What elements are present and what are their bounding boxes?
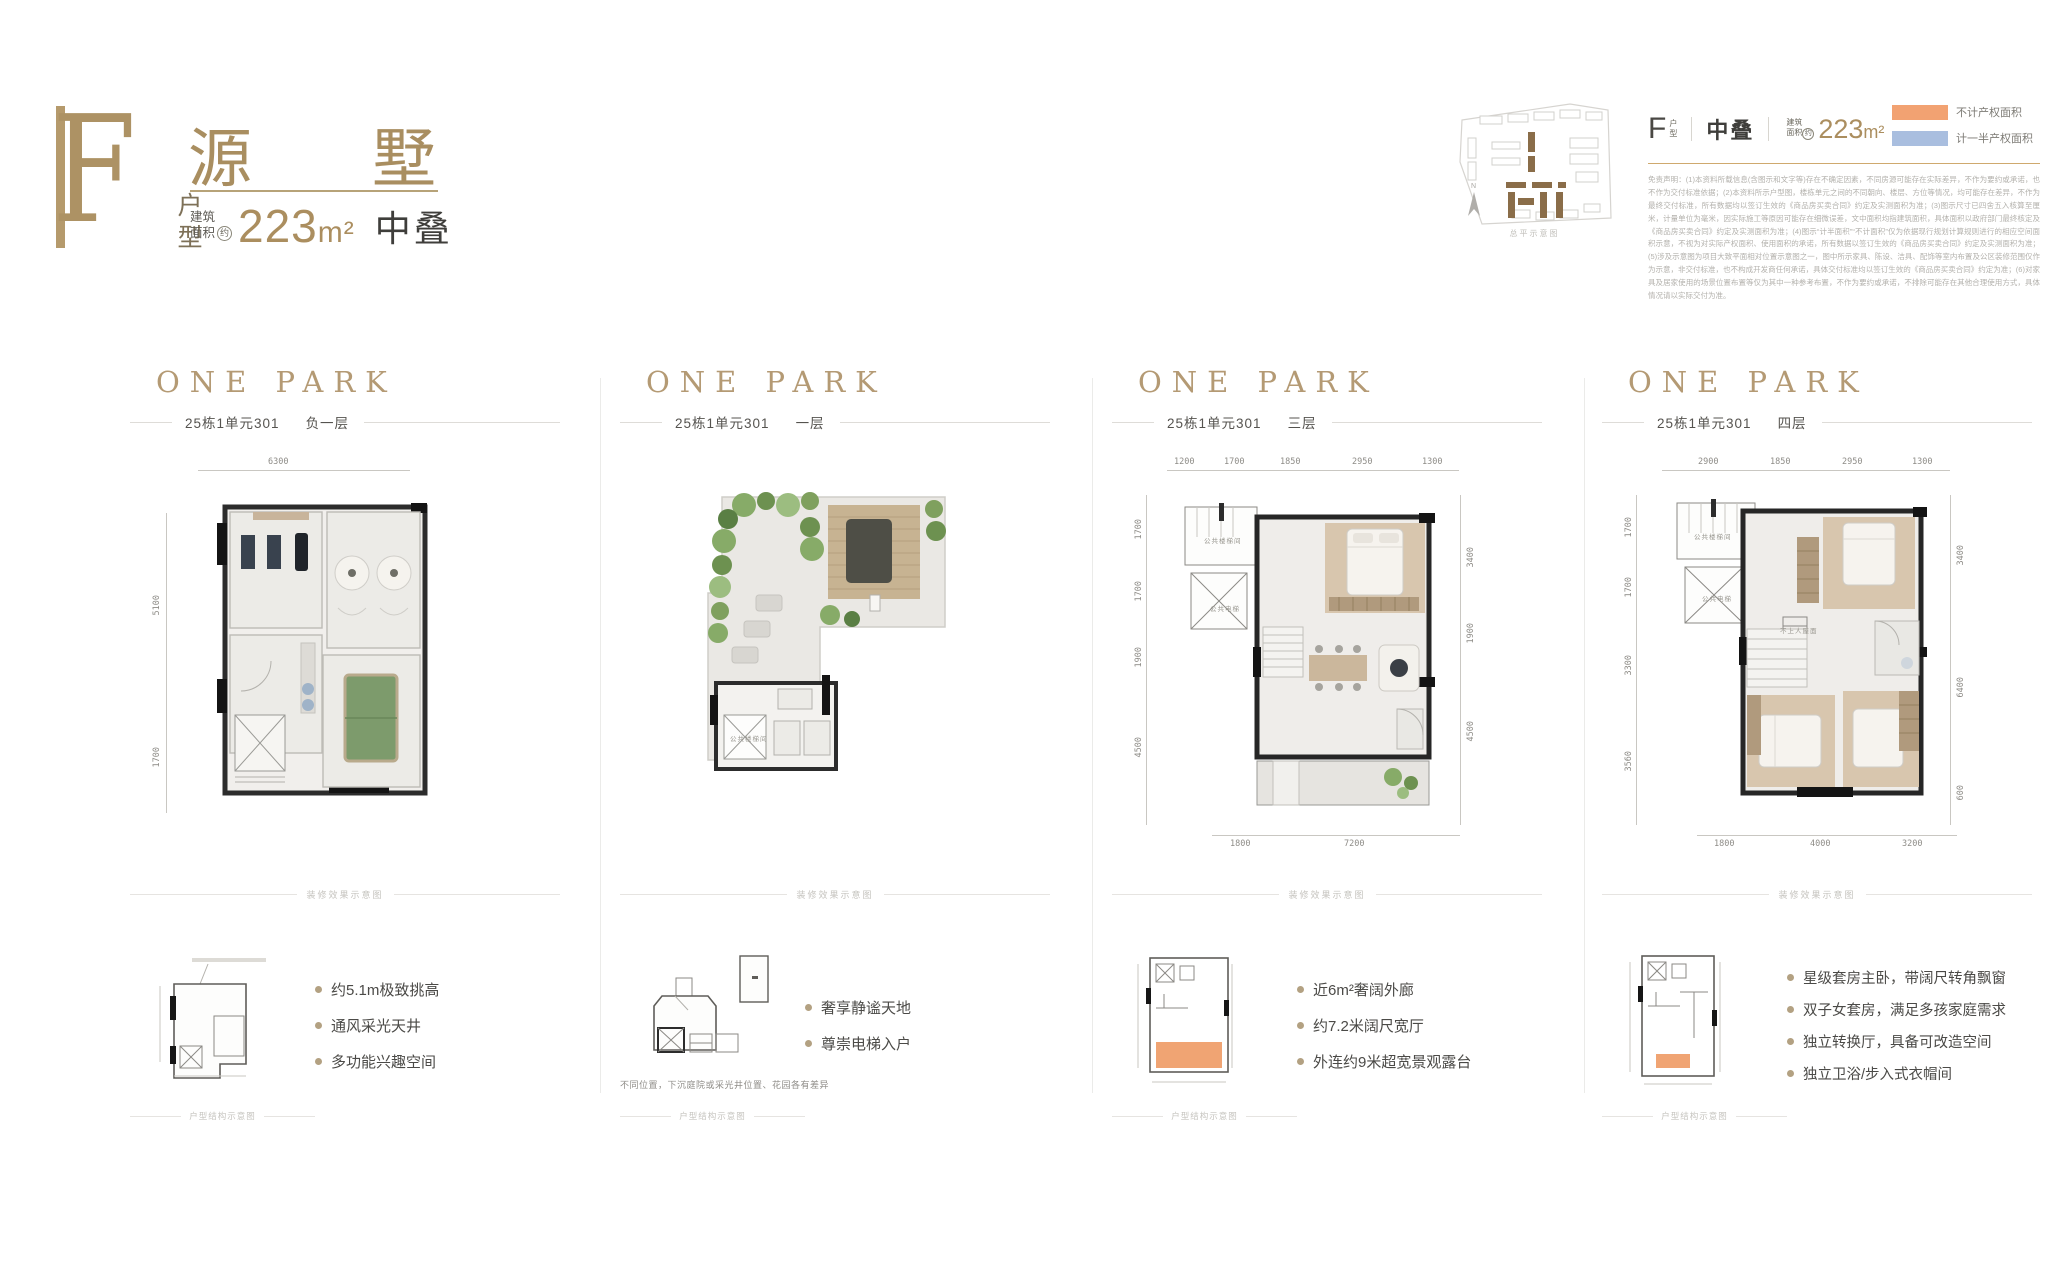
caption-floor: 负一层 bbox=[306, 412, 350, 432]
stack-type-label: 中叠 bbox=[375, 200, 453, 252]
structure-diagram-drawing bbox=[1112, 950, 1297, 1095]
gold-rule bbox=[190, 190, 438, 192]
one-park-logo: ONE PARK bbox=[130, 365, 560, 399]
siteplan-map-icon: N bbox=[1452, 98, 1617, 228]
one-park-logo: ONE PARK bbox=[1112, 365, 1542, 399]
feature-item: 外连约9米超宽景观露台 bbox=[1297, 1051, 1538, 1072]
room-label: 公共楼梯间 bbox=[730, 733, 768, 743]
panel-fourth-floor: ONE PARK 25栋1单元301 四层 2900 1850 2950 130… bbox=[1602, 365, 2032, 1130]
siteplan-caption: 总平示意图 bbox=[1452, 228, 1617, 239]
structure-caption: 户型结构示意图 bbox=[620, 1110, 805, 1122]
bullet-dot-icon bbox=[1787, 974, 1794, 981]
feature-item: 独立转换厅，具备可改造空间 bbox=[1787, 1031, 2028, 1052]
info-type-label: 户 型 bbox=[1669, 119, 1677, 138]
feature-item: 约5.1m极致挑高 bbox=[315, 979, 556, 1000]
structure-caption: 户型结构示意图 bbox=[130, 1110, 315, 1122]
area-value: 223m² bbox=[238, 199, 355, 253]
dim-top: 6300 bbox=[268, 457, 288, 467]
effect-caption: 装修效果示意图 bbox=[1112, 888, 1542, 901]
area-label-2: 面积 bbox=[190, 226, 215, 242]
caption-unit: 25栋1单元301 bbox=[1657, 412, 1752, 432]
brochure-page: F 户型 源墅 建筑 面积约 223m² 中叠 bbox=[0, 0, 2048, 1280]
bullet-dot-icon bbox=[315, 1058, 322, 1065]
caption-unit: 25栋1单元301 bbox=[185, 412, 280, 432]
feature-item: 双子女套房，满足多孩家庭需求 bbox=[1787, 999, 2028, 1020]
dim-line bbox=[166, 513, 167, 813]
panel-bottom: 星级套房主卧，带阔尺转角飘窗 双子女套房，满足多孩家庭需求 独立转换厅，具备可改… bbox=[1602, 950, 2032, 1100]
structure-diagram bbox=[1112, 950, 1297, 1100]
one-park-logo: ONE PARK bbox=[1602, 365, 2032, 399]
feature-item: 奢享静谧天地 bbox=[805, 997, 1046, 1018]
divider bbox=[1691, 117, 1692, 141]
floorplan-fourth: 2900 1850 2950 1300 1700 1700 3300 3560 … bbox=[1602, 455, 2032, 885]
bullet-dot-icon bbox=[315, 986, 322, 993]
bullet-dot-icon bbox=[1297, 1022, 1304, 1029]
effect-caption: 装修效果示意图 bbox=[1602, 888, 2032, 901]
panel-basement-floor: ONE PARK 25栋1单元301 负一层 6300 5100 1700 bbox=[130, 365, 560, 1130]
bullet-dot-icon bbox=[1787, 1070, 1794, 1077]
bullet-dot-icon bbox=[1787, 1038, 1794, 1045]
legend-item-half: 计一半产权面积 bbox=[1892, 130, 2033, 146]
panel-bottom: 近6m²奢阔外廊 约7.2米阔尺宽厅 外连约9米超宽景观露台 bbox=[1112, 950, 1542, 1100]
plan-caption-row: 25栋1单元301 一层 bbox=[620, 412, 1050, 432]
gold-rule bbox=[1648, 163, 2040, 164]
bullet-dot-icon bbox=[315, 1022, 322, 1029]
divider bbox=[1768, 117, 1769, 141]
caption-floor: 三层 bbox=[1288, 412, 1317, 432]
legend-swatch-orange bbox=[1892, 105, 1948, 120]
room-label: 公共电梯 bbox=[1210, 603, 1240, 613]
plan-caption-row: 25栋1单元301 负一层 bbox=[130, 412, 560, 432]
bullet-dot-icon bbox=[1297, 1058, 1304, 1065]
area-unit: m² bbox=[318, 216, 355, 249]
area-prefix: 建筑 面积约 bbox=[190, 210, 232, 241]
info-type-letter: F bbox=[1648, 112, 1666, 146]
room-label: 公共楼梯间 bbox=[1204, 535, 1242, 545]
panel-bottom: 约5.1m极致挑高 通风采光天井 多功能兴趣空间 bbox=[130, 950, 560, 1100]
feature-item: 星级套房主卧，带阔尺转角飘窗 bbox=[1787, 967, 2028, 988]
panel-third-floor: ONE PARK 25栋1单元301 三层 1200 1700 1850 295… bbox=[1112, 365, 1542, 1130]
header-area-row: 建筑 面积约 223m² 中叠 bbox=[190, 199, 453, 253]
dim-left: 1700 bbox=[152, 747, 162, 767]
legend-swatch-blue bbox=[1892, 131, 1948, 146]
disclaimer-text: 免责声明：(1)本资料所载信息(含图示和文字等)存在不确定因素，不同房源可能存在… bbox=[1648, 174, 2040, 303]
feature-item: 约7.2米阔尺宽厅 bbox=[1297, 1015, 1538, 1036]
room-label: 公共电梯 bbox=[1702, 593, 1732, 603]
garden-note: 不同位置，下沉庭院或采光井位置、花园各有差异 bbox=[620, 1078, 930, 1091]
feature-item: 独立卫浴/步入式衣帽间 bbox=[1787, 1063, 2028, 1084]
bullet-dot-icon bbox=[1297, 986, 1304, 993]
area-label-1: 建筑 bbox=[190, 210, 232, 226]
structure-diagram bbox=[1602, 950, 1787, 1100]
structure-diagram-drawing bbox=[130, 950, 315, 1095]
unit-type-letter: F bbox=[52, 96, 136, 244]
approx-circle: 约 bbox=[217, 226, 232, 241]
structure-caption: 户型结构示意图 bbox=[1112, 1110, 1297, 1122]
info-area-label: 建筑 面积约 bbox=[1786, 118, 1814, 140]
caption-line bbox=[364, 422, 560, 423]
feature-item: 通风采光天井 bbox=[315, 1015, 556, 1036]
feature-item: 近6m²奢阔外廊 bbox=[1297, 979, 1538, 1000]
dim-line bbox=[198, 470, 410, 471]
effect-caption: 装修效果示意图 bbox=[620, 888, 1050, 901]
legend-item-excluded: 不计产权面积 bbox=[1892, 104, 2033, 120]
floorplan-garden-drawing bbox=[660, 475, 980, 825]
caption-floor: 一层 bbox=[796, 412, 825, 432]
column-divider bbox=[1584, 378, 1585, 1093]
product-name-char1: 源 bbox=[188, 123, 254, 195]
floorplan-fourth-drawing bbox=[1647, 477, 1947, 832]
plan-caption-row: 25栋1单元301 三层 bbox=[1112, 412, 1542, 432]
area-legend: 不计产权面积 计一半产权面积 bbox=[1892, 104, 2033, 146]
floorplan-basement-drawing bbox=[175, 483, 475, 823]
column-divider bbox=[600, 378, 601, 1093]
floorplan-basement: 6300 5100 1700 bbox=[130, 455, 560, 885]
structure-caption: 户型结构示意图 bbox=[1602, 1110, 1787, 1122]
legend-label: 不计产权面积 bbox=[1956, 104, 2022, 120]
siteplan-diagram: N bbox=[1452, 98, 1617, 233]
dim-left: 5100 bbox=[152, 595, 162, 615]
bullet-dot-icon bbox=[805, 1004, 812, 1011]
feature-item: 尊崇电梯入户 bbox=[805, 1033, 1046, 1054]
product-name: 源墅 bbox=[188, 108, 438, 200]
caption-unit: 25栋1单元301 bbox=[1167, 412, 1262, 432]
floorplan-garden: 公共楼梯间 bbox=[620, 455, 1050, 885]
feature-list: 约5.1m极致挑高 通风采光天井 多功能兴趣空间 bbox=[315, 950, 560, 1100]
caption-floor: 四层 bbox=[1778, 412, 1807, 432]
info-area-value: 223m² bbox=[1818, 114, 1884, 145]
structure-diagram-drawing bbox=[1602, 950, 1787, 1095]
approx-circle: 约 bbox=[1802, 128, 1814, 140]
bullet-dot-icon bbox=[1787, 1006, 1794, 1013]
structure-diagram-drawing bbox=[620, 950, 805, 1075]
panel-first-floor: ONE PARK 25栋1单元301 一层 bbox=[620, 365, 1050, 1130]
caption-unit: 25栋1单元301 bbox=[675, 412, 770, 432]
caption-line bbox=[130, 422, 172, 423]
feature-list: 星级套房主卧，带阔尺转角飘窗 双子女套房，满足多孩家庭需求 独立转换厅，具备可改… bbox=[1787, 950, 2032, 1100]
one-park-logo: ONE PARK bbox=[620, 365, 1050, 399]
feature-item: 多功能兴趣空间 bbox=[315, 1051, 556, 1072]
product-name-char2: 墅 bbox=[372, 123, 438, 195]
svg-text:N: N bbox=[1471, 183, 1476, 190]
legend-label: 计一半产权面积 bbox=[1956, 130, 2033, 146]
room-label: 公共楼梯间 bbox=[1694, 531, 1732, 541]
structure-diagram bbox=[130, 950, 315, 1100]
bullet-dot-icon bbox=[805, 1040, 812, 1047]
effect-caption: 装修效果示意图 bbox=[130, 888, 560, 901]
column-divider bbox=[1092, 378, 1093, 1093]
info-stack-label: 中叠 bbox=[1706, 113, 1754, 145]
feature-list: 近6m²奢阔外廊 约7.2米阔尺宽厅 外连约9米超宽景观露台 bbox=[1297, 950, 1542, 1100]
floorplan-third-drawing bbox=[1157, 477, 1457, 832]
floorplan-third: 1200 1700 1850 2950 1300 1700 1700 1900 … bbox=[1112, 455, 1542, 885]
room-label: 不上人屋面 bbox=[1780, 625, 1818, 635]
info-bar: F 户 型 中叠 建筑 面积约 223m² bbox=[1648, 112, 1884, 146]
plan-caption-row: 25栋1单元301 四层 bbox=[1602, 412, 2032, 432]
